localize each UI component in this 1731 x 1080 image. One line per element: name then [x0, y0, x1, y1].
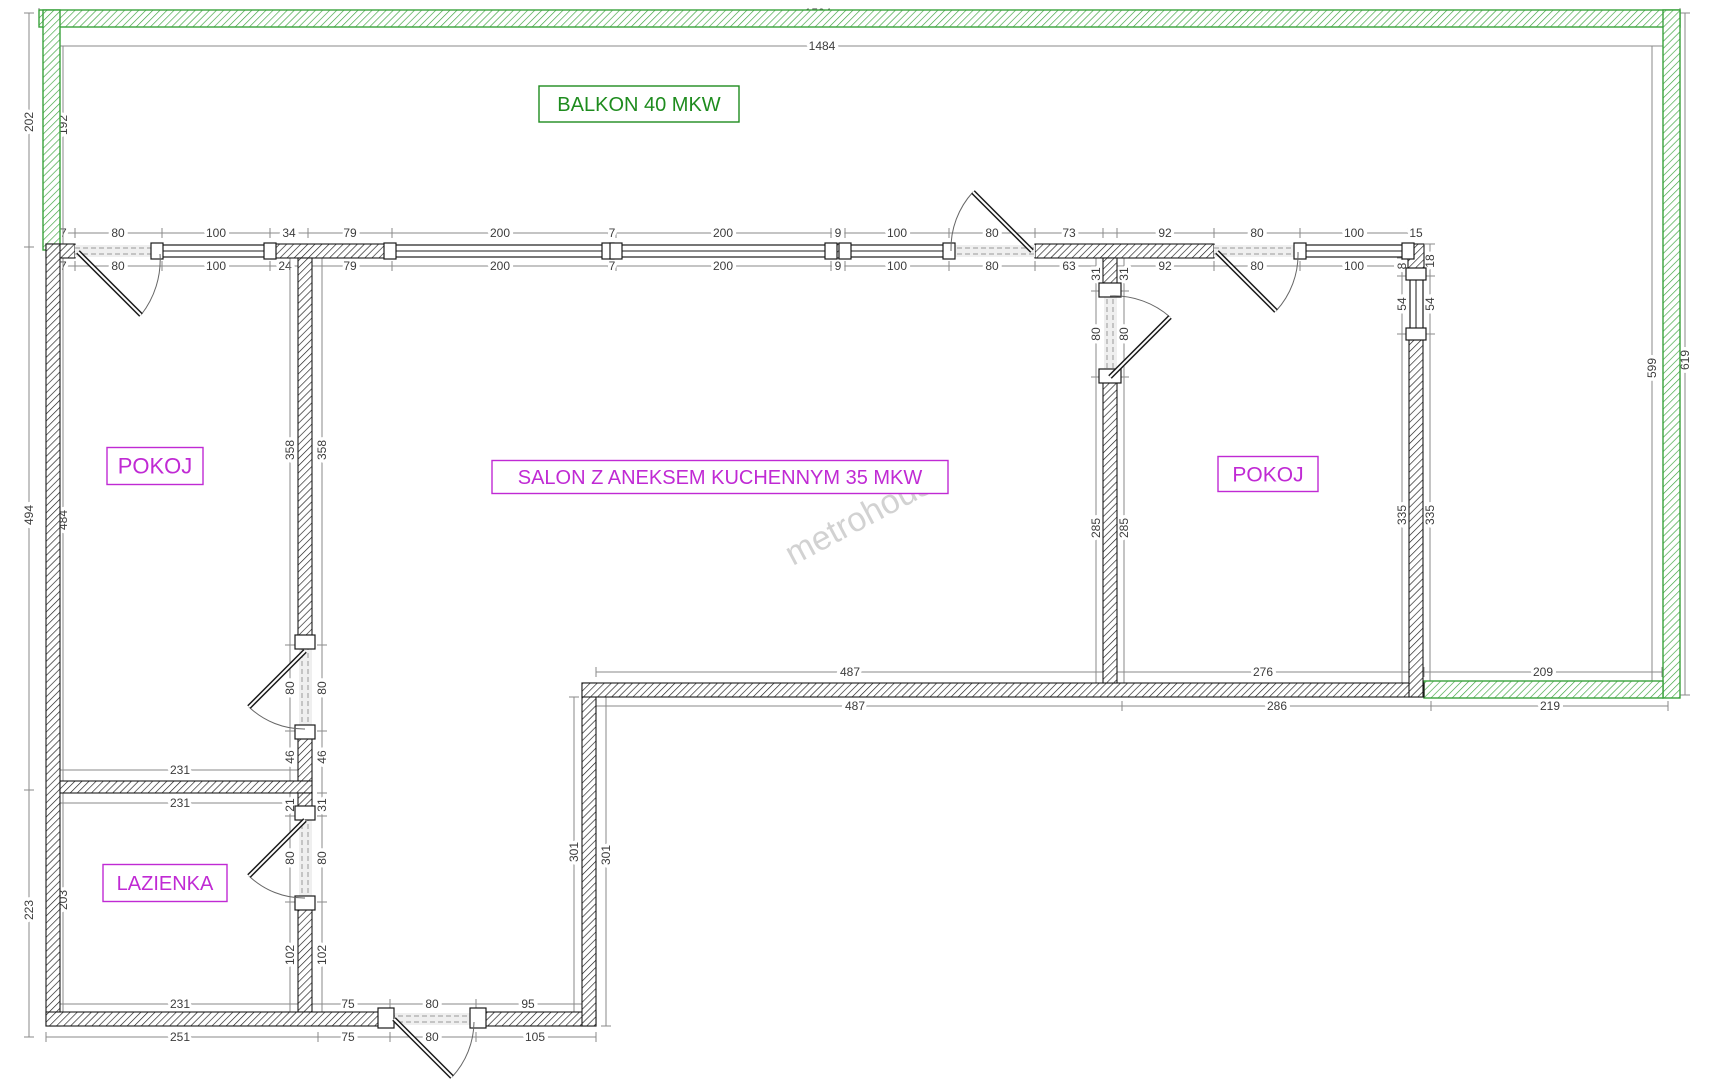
door-jamb — [1406, 328, 1426, 340]
dim-label: 200 — [713, 226, 733, 240]
door-jamb — [610, 243, 622, 259]
dim-label: 79 — [343, 259, 357, 273]
wall-segment — [298, 258, 312, 645]
door-jamb — [295, 635, 315, 649]
door-jambs — [151, 243, 1426, 1028]
dim-label: 100 — [1344, 226, 1364, 240]
dim-label: 54 — [1395, 297, 1409, 311]
door-jamb — [1406, 268, 1426, 280]
wall-segment — [1103, 377, 1117, 683]
door-jamb — [825, 243, 837, 259]
dim-label: 1484 — [809, 39, 836, 53]
dim-chain: 301 — [599, 683, 613, 1026]
wall-segment — [1035, 244, 1214, 258]
dim-label: 63 — [1062, 259, 1076, 273]
room-label-text: POKOJ — [1232, 463, 1303, 486]
wall-segment — [270, 244, 392, 258]
dim-label: 202 — [22, 112, 36, 132]
dim-label: 34 — [282, 226, 296, 240]
dim-label: 285 — [1117, 518, 1131, 538]
door-jamb — [295, 725, 315, 739]
dim-label: 31 — [315, 798, 329, 812]
dim-label: 599 — [1645, 358, 1659, 378]
dim-label: 219 — [1540, 699, 1560, 713]
door-swing-arc — [141, 254, 160, 315]
dim-chain: 599 — [1645, 46, 1659, 695]
balcony-wall — [1663, 10, 1680, 698]
dim-label: 285 — [1089, 518, 1103, 538]
dim-chain: 231 — [60, 763, 302, 777]
dim-chain: 2517580105 — [46, 1030, 596, 1044]
door-jamb — [943, 243, 955, 259]
wall-segment — [476, 1012, 596, 1026]
dim-label: 105 — [525, 1030, 545, 1044]
balcony-wall — [43, 10, 60, 250]
door-swing-arc — [1276, 252, 1298, 311]
dim-label: 80 — [111, 226, 125, 240]
door-leaf-core — [1217, 252, 1276, 311]
dim-chain: 3180285 — [1117, 258, 1131, 683]
room-labels: BALKON 40 MKWPOKOJSALON Z ANEKSEM KUCHEN… — [103, 86, 1318, 902]
room-label-pokoj_right: POKOJ — [1218, 457, 1318, 492]
wall-segment — [298, 738, 312, 781]
dim-label: 80 — [283, 681, 297, 695]
dim-chain: 1854335 — [1423, 244, 1437, 697]
dim-label: 494 — [22, 505, 36, 525]
dim-label: 18 — [1423, 254, 1437, 268]
wall-segment — [46, 244, 60, 1026]
entrance-door — [394, 1019, 474, 1077]
door-leaf-core — [249, 820, 305, 876]
balcony-wall — [1424, 681, 1663, 698]
dim-label: 276 — [1253, 665, 1273, 679]
dim-label: 73 — [1062, 226, 1076, 240]
dim-label: 75 — [341, 1030, 355, 1044]
dim-chain: 35880463180102 — [315, 258, 329, 1012]
dim-label: 80 — [283, 851, 297, 865]
dim-label: 286 — [1267, 699, 1287, 713]
door-swing-arc — [249, 876, 305, 898]
dim-label: 7 — [609, 259, 616, 273]
door-leaf-core — [78, 252, 141, 315]
door-swing-arc — [1110, 296, 1170, 317]
room-label-pokoj_left: POKOJ — [107, 448, 203, 485]
door-opening — [390, 1013, 476, 1025]
dim-label: 301 — [567, 842, 581, 862]
dim-label: 80 — [1250, 226, 1264, 240]
dim-label: 200 — [713, 259, 733, 273]
dim-label: 92 — [1158, 226, 1172, 240]
door-jamb — [470, 1008, 486, 1028]
dim-label: 100 — [1344, 259, 1364, 273]
dim-label: 9 — [835, 226, 842, 240]
wall-segment — [298, 902, 312, 1012]
dim-label: 80 — [1117, 327, 1131, 341]
door-opening — [949, 245, 1035, 257]
door-jamb — [151, 243, 163, 259]
dim-label: 80 — [425, 1030, 439, 1044]
door-leaf-core — [394, 1019, 452, 1077]
apartment-walls — [46, 244, 1424, 1026]
dim-label: 209 — [1533, 665, 1553, 679]
dim-label: 200 — [490, 226, 510, 240]
dim-label: 487 — [840, 665, 860, 679]
door-jamb — [1402, 243, 1414, 259]
dim-label: 80 — [985, 259, 999, 273]
dim-label: 80 — [111, 259, 125, 273]
door-jamb — [295, 806, 315, 820]
door-jamb — [1294, 243, 1306, 259]
wall-segment — [46, 1012, 390, 1026]
dim-label: 231 — [170, 997, 190, 1011]
room-label-salon: SALON Z ANEKSEM KUCHENNYM 35 MKW — [492, 461, 948, 494]
dim-label: 358 — [315, 440, 329, 460]
dim-label: 95 — [521, 997, 535, 1011]
dim-label: 15 — [1409, 226, 1423, 240]
dim-label: 80 — [1250, 259, 1264, 273]
dim-label: 223 — [22, 900, 36, 920]
dim-label: 7 — [609, 226, 616, 240]
room-label-balkon: BALKON 40 MKW — [539, 86, 739, 122]
room-label-text: LAZIENKA — [117, 873, 214, 895]
dim-label: 100 — [887, 226, 907, 240]
dim-label: 231 — [170, 763, 190, 777]
door-swing-arc — [951, 192, 973, 251]
dim-chain: 301 — [567, 697, 581, 1012]
dim-label: 46 — [283, 750, 297, 764]
dim-label: 80 — [1089, 327, 1103, 341]
dim-label: 358 — [283, 440, 297, 460]
dim-chain: 487286219 — [596, 699, 1668, 713]
dim-label: 335 — [1423, 505, 1437, 525]
dim-label: 92 — [1158, 259, 1172, 273]
room-label-text: POKOJ — [118, 454, 193, 479]
door-jamb — [378, 1008, 394, 1028]
dim-label: 100 — [206, 226, 226, 240]
room-label-text: BALKON 40 MKW — [557, 94, 721, 116]
dim-label: 301 — [599, 845, 613, 865]
door-jamb — [1099, 283, 1121, 297]
dim-label: 487 — [845, 699, 865, 713]
door-opening — [299, 816, 312, 902]
door-jamb — [839, 243, 851, 259]
dim-label: 31 — [1089, 267, 1103, 281]
dim-label: 231 — [170, 796, 190, 810]
door-opening — [75, 245, 162, 257]
dim-label: 102 — [283, 945, 297, 965]
dim-chain: 854335 — [1395, 258, 1409, 697]
dim-label: 80 — [315, 681, 329, 695]
dim-chain: 487276209 — [596, 665, 1662, 679]
dim-chain: 231 — [60, 796, 302, 810]
wall-segment — [60, 781, 312, 793]
dim-label: 335 — [1395, 505, 1409, 525]
dim-label: 100 — [206, 259, 226, 273]
room-label-lazienka: LAZIENKA — [103, 865, 227, 902]
door-opening — [1104, 291, 1117, 377]
room-label-text: SALON Z ANEKSEM KUCHENNYM 35 MKW — [518, 467, 923, 489]
dim-label: 200 — [490, 259, 510, 273]
door-swing-arc — [452, 1022, 474, 1077]
dim-label: 31 — [1117, 267, 1131, 281]
wall-segment — [582, 683, 596, 1026]
dim-label: 9 — [835, 259, 842, 273]
dim-label: 80 — [315, 851, 329, 865]
dim-label: 100 — [887, 259, 907, 273]
dim-chain: 27801003479200720091008073928010015 — [46, 226, 1424, 240]
wall-segment — [1409, 334, 1423, 697]
door-jamb — [384, 243, 396, 259]
floor-plan-svg: 1504148427801003479200720091008073928010… — [0, 0, 1731, 1080]
dim-chain: 202494223 — [22, 13, 36, 1037]
dim-label: 75 — [341, 997, 355, 1011]
door-leaf-core — [249, 651, 305, 707]
wall-segment — [582, 683, 1424, 697]
dim-label: 80 — [985, 226, 999, 240]
dim-chain: 1484 — [56, 39, 1663, 53]
dim-chain: 231758095 — [60, 997, 582, 1011]
dim-label: 46 — [315, 750, 329, 764]
floor-plan-canvas: 1504148427801003479200720091008073928010… — [0, 0, 1731, 1080]
dim-label: 251 — [170, 1030, 190, 1044]
dim-chain: 278010024792007200910080639280100 — [46, 259, 1408, 273]
balcony-door-salon — [951, 192, 1032, 251]
dim-label: 80 — [425, 997, 439, 1011]
dim-label: 54 — [1423, 297, 1437, 311]
dim-label: 79 — [343, 226, 357, 240]
balcony-walls — [39, 10, 1680, 698]
door-leaf-core — [1110, 317, 1170, 377]
door-jamb — [264, 243, 276, 259]
door-opening — [1214, 245, 1300, 257]
door-leaf-core — [973, 192, 1032, 251]
dim-chain: 3180285 — [1089, 258, 1103, 683]
balcony-wall — [39, 10, 1680, 27]
dim-label: 102 — [315, 945, 329, 965]
